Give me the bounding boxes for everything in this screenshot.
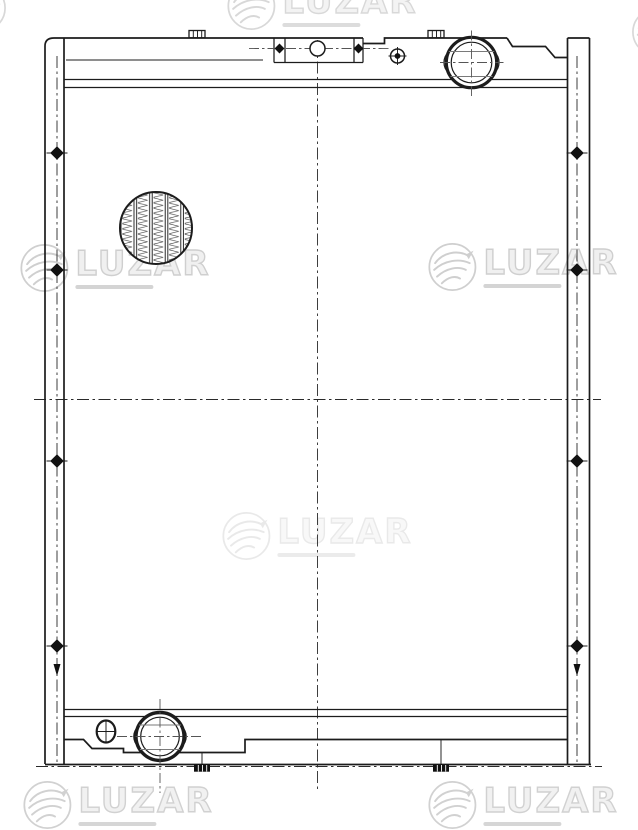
bolt-bottom-right: [433, 740, 449, 772]
filler-neck: [440, 31, 504, 97]
luzar-tagline-bar: [483, 822, 561, 827]
rivet-left: [275, 44, 285, 54]
section-arrow-right: [574, 664, 581, 676]
section-arrow-left: [54, 664, 61, 676]
bolt-hole: [389, 47, 407, 65]
radiator-drawing: [0, 0, 638, 811]
fixing-bolts: [189, 31, 449, 772]
outlet-pipe: [117, 699, 203, 793]
core-fins-detail-circle: [120, 192, 192, 264]
bolt-top-left: [189, 31, 205, 38]
centerlines: [34, 40, 602, 791]
radiator-technical-drawing-page: { "document": { "kind": "technical-line-…: [0, 0, 638, 811]
mounting-pin: [567, 639, 588, 653]
mounting-pin: [567, 263, 588, 277]
top-mounting-plate: [249, 38, 391, 63]
rivet-right: [354, 44, 364, 54]
drain-plug: [96, 720, 116, 744]
bolt-bottom-left: [194, 753, 210, 772]
mounting-pin: [567, 454, 588, 468]
luzar-tagline-bar: [78, 822, 156, 827]
plate-hole: [310, 41, 325, 56]
header-plate-lines: [64, 60, 568, 717]
bolt-top-right: [428, 31, 444, 38]
frame-and-tanks-outline: [45, 38, 591, 765]
mounting-pin: [567, 146, 588, 160]
